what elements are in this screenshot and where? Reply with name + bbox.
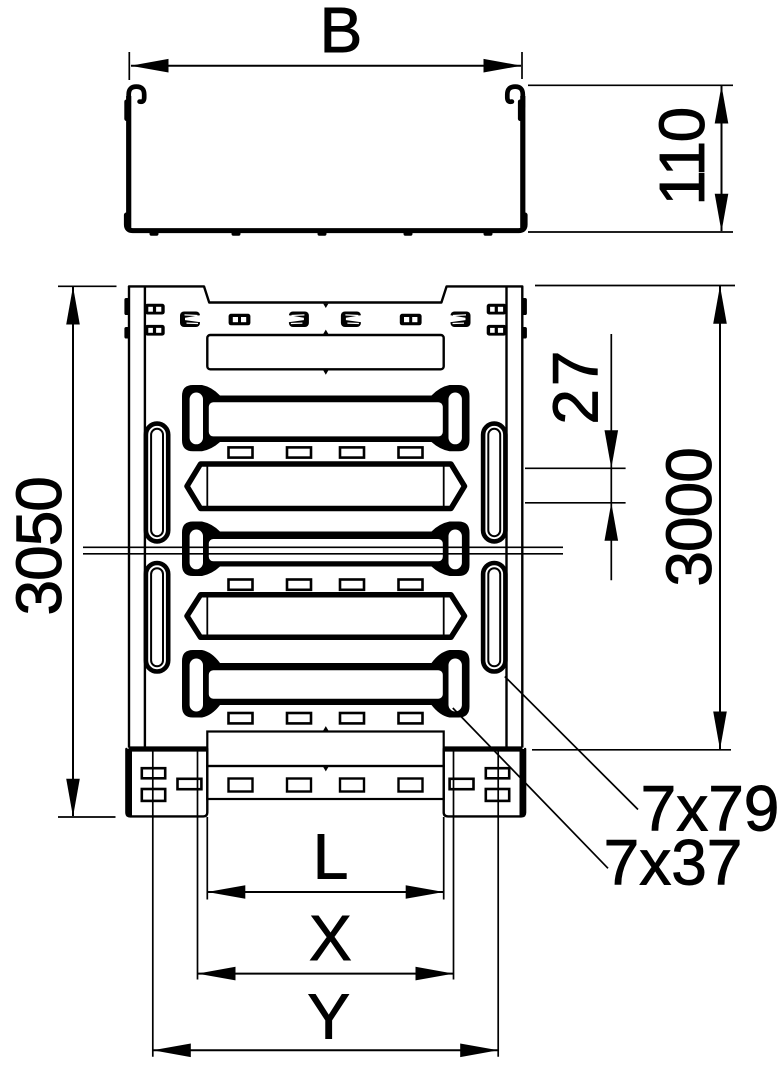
svg-text:X: X bbox=[309, 902, 352, 974]
svg-text:3050: 3050 bbox=[3, 477, 75, 615]
svg-text:Y: Y bbox=[307, 981, 350, 1053]
svg-text:110: 110 bbox=[646, 108, 718, 205]
svg-text:7x37: 7x37 bbox=[604, 826, 743, 898]
svg-text:27: 27 bbox=[539, 348, 611, 425]
svg-text:3000: 3000 bbox=[653, 448, 725, 586]
svg-text:L: L bbox=[313, 821, 349, 893]
svg-text:B: B bbox=[320, 0, 363, 66]
